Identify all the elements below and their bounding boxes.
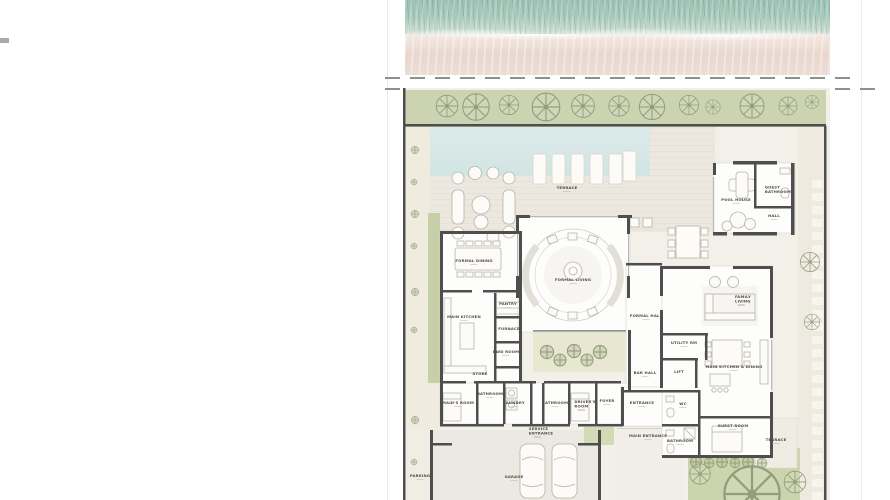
label-terrace-top: TERRACE (557, 186, 578, 192)
floor-plan-drawing (0, 0, 890, 500)
label-guest-bathroom: GUEST BATHROOM (765, 185, 779, 194)
label-family-living: FAMILY LIVING (735, 295, 747, 306)
label-hall: HALL (768, 214, 780, 220)
label-guest-room: GUEST ROOM (718, 424, 749, 430)
label-main-kitchen: MAIN KITCHEN (447, 315, 481, 321)
label-bathroom-1: BATHROOM (477, 392, 503, 398)
label-furnace: FURNACE (498, 327, 520, 332)
label-utility-rm: UTILITY RM (671, 341, 697, 347)
label-bathroom-2: BATHROOM (542, 401, 568, 407)
label-maids-room: MAID'S ROOM (442, 401, 474, 407)
floor-plan-sheet: TERRACE FORMAL DINING FORMAL LIVING MAIN… (0, 0, 890, 500)
outdoor-dining (630, 218, 708, 258)
label-main-entrance: MAIN ENTRANCE (629, 434, 667, 440)
label-bathroom-hall: BATHROOM (667, 439, 693, 445)
sun-loungers (533, 151, 636, 184)
label-foyer: FOYER (600, 399, 615, 405)
label-store: STORE (472, 372, 487, 377)
garage-cars (520, 444, 577, 498)
label-service-entrance: SERVICE ENTRANCE (529, 427, 546, 438)
label-pwd-room: PWD ROOM (493, 350, 519, 356)
label-formal-living: FORMAL LIVING (555, 278, 591, 284)
label-pool-house: POOL HOUSE (721, 198, 751, 204)
label-parking: PARKING (410, 474, 430, 480)
label-garage: GARAGE (505, 475, 524, 481)
label-bar-hall: BAR HALL (634, 371, 657, 377)
label-pantry: PANTRY (499, 302, 517, 308)
label-laundry: LAUNDRY (503, 401, 525, 407)
label-main-kitchen-dining: MAIN KITCHEN & DINING (706, 365, 763, 371)
label-drivers-room: DRIVER'S ROOM (574, 400, 587, 411)
label-formal-hall: FORMAL HALL (630, 314, 662, 320)
label-terrace-right: TERRACE (766, 438, 787, 444)
label-wc: WC (679, 402, 686, 408)
label-lift: LIFT (674, 370, 684, 375)
label-formal-dining: FORMAL DINING (455, 259, 492, 265)
label-entrance: ENTRANCE (630, 401, 654, 407)
